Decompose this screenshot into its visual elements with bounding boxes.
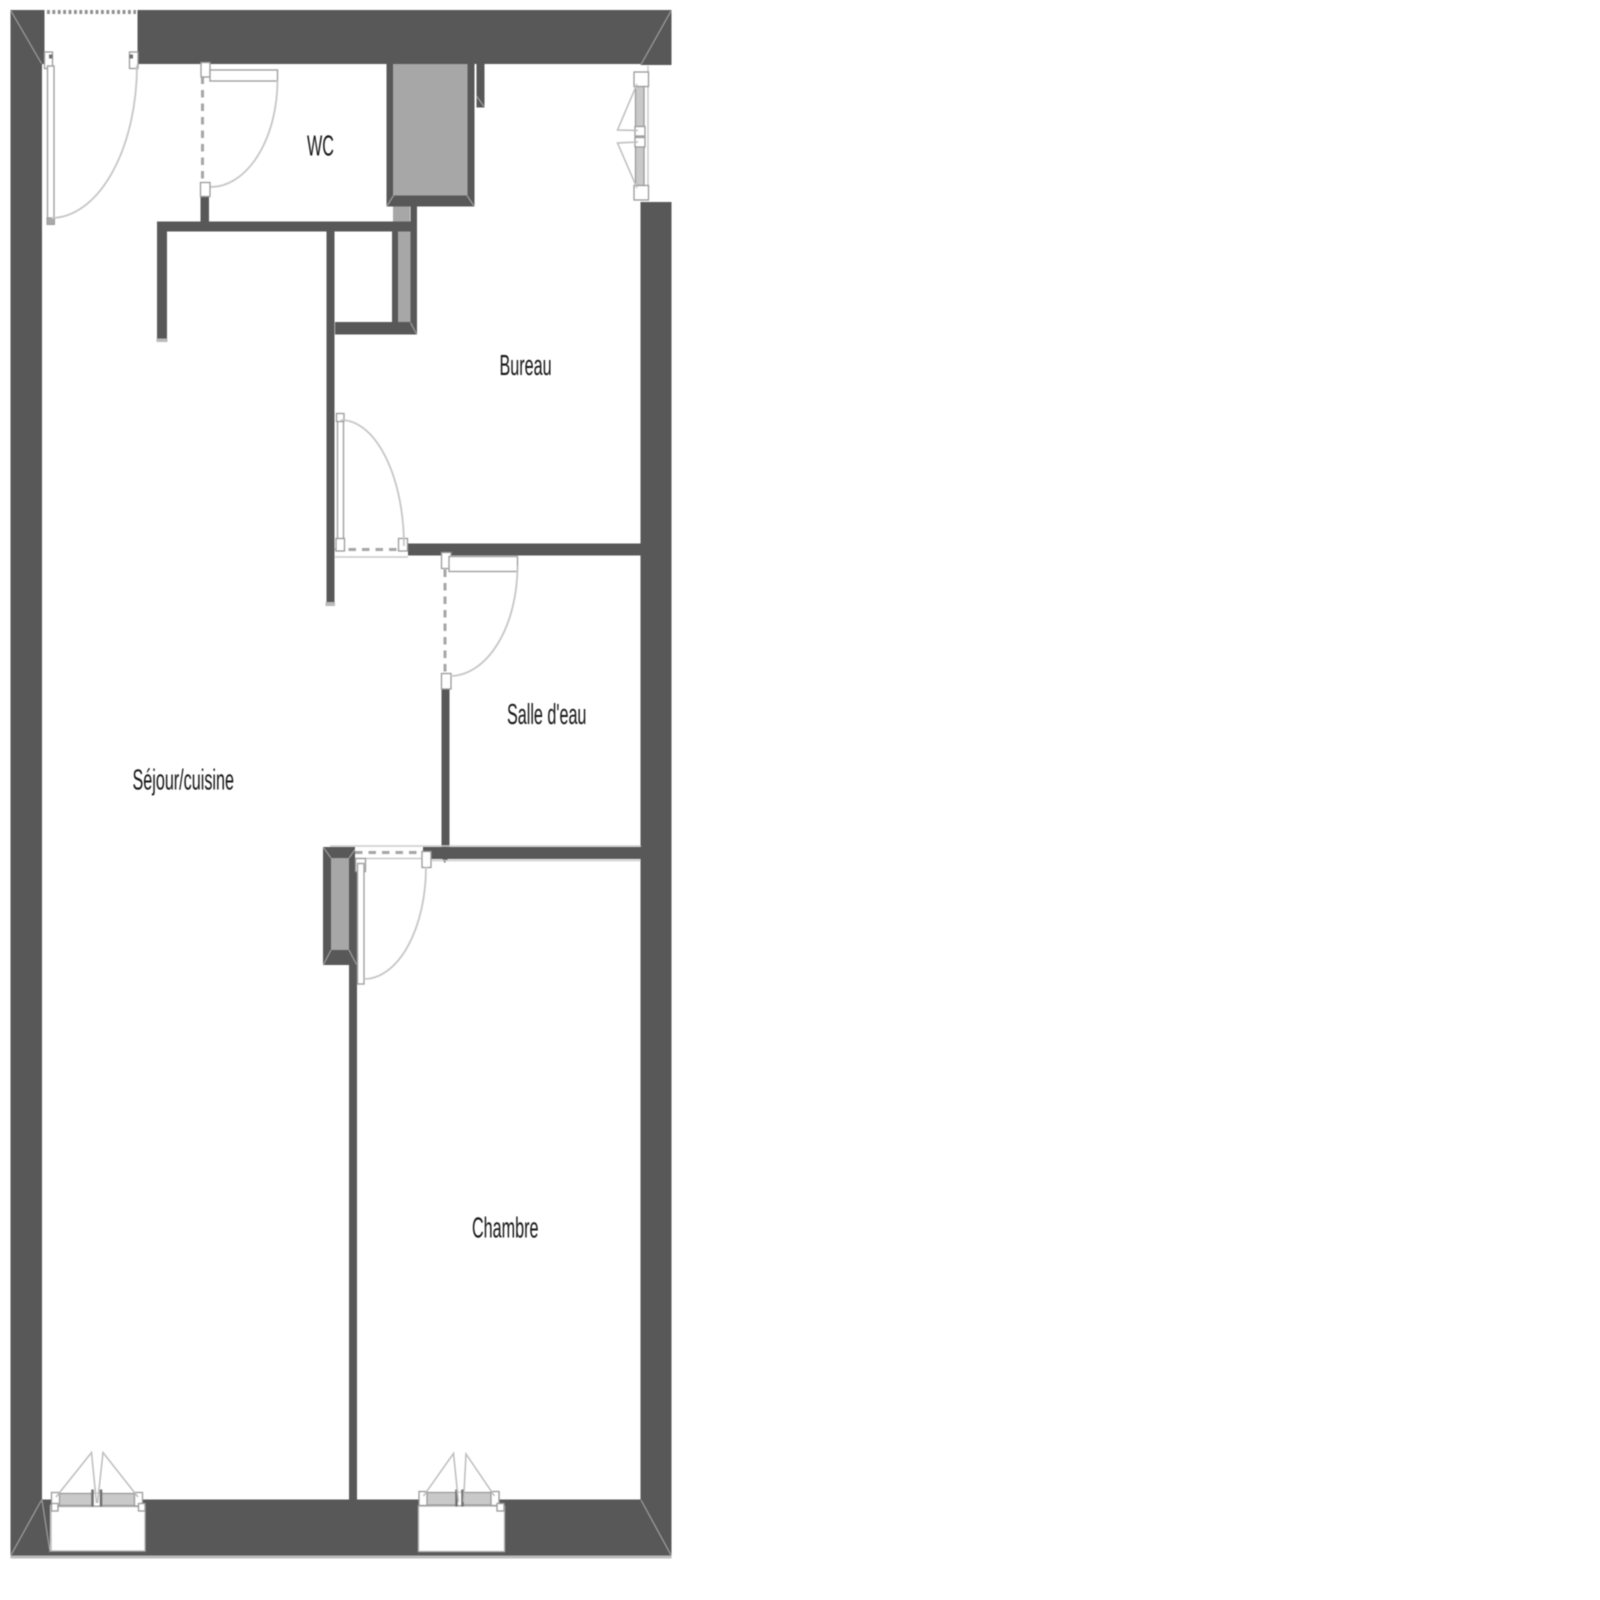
svg-text:Séjour/cuisine: Séjour/cuisine — [133, 764, 234, 796]
svg-text:Bureau: Bureau — [500, 349, 552, 381]
svg-text:Salle d'eau: Salle d'eau — [507, 698, 586, 730]
svg-text:Chambre: Chambre — [472, 1212, 538, 1244]
svg-text:WC: WC — [307, 130, 334, 162]
